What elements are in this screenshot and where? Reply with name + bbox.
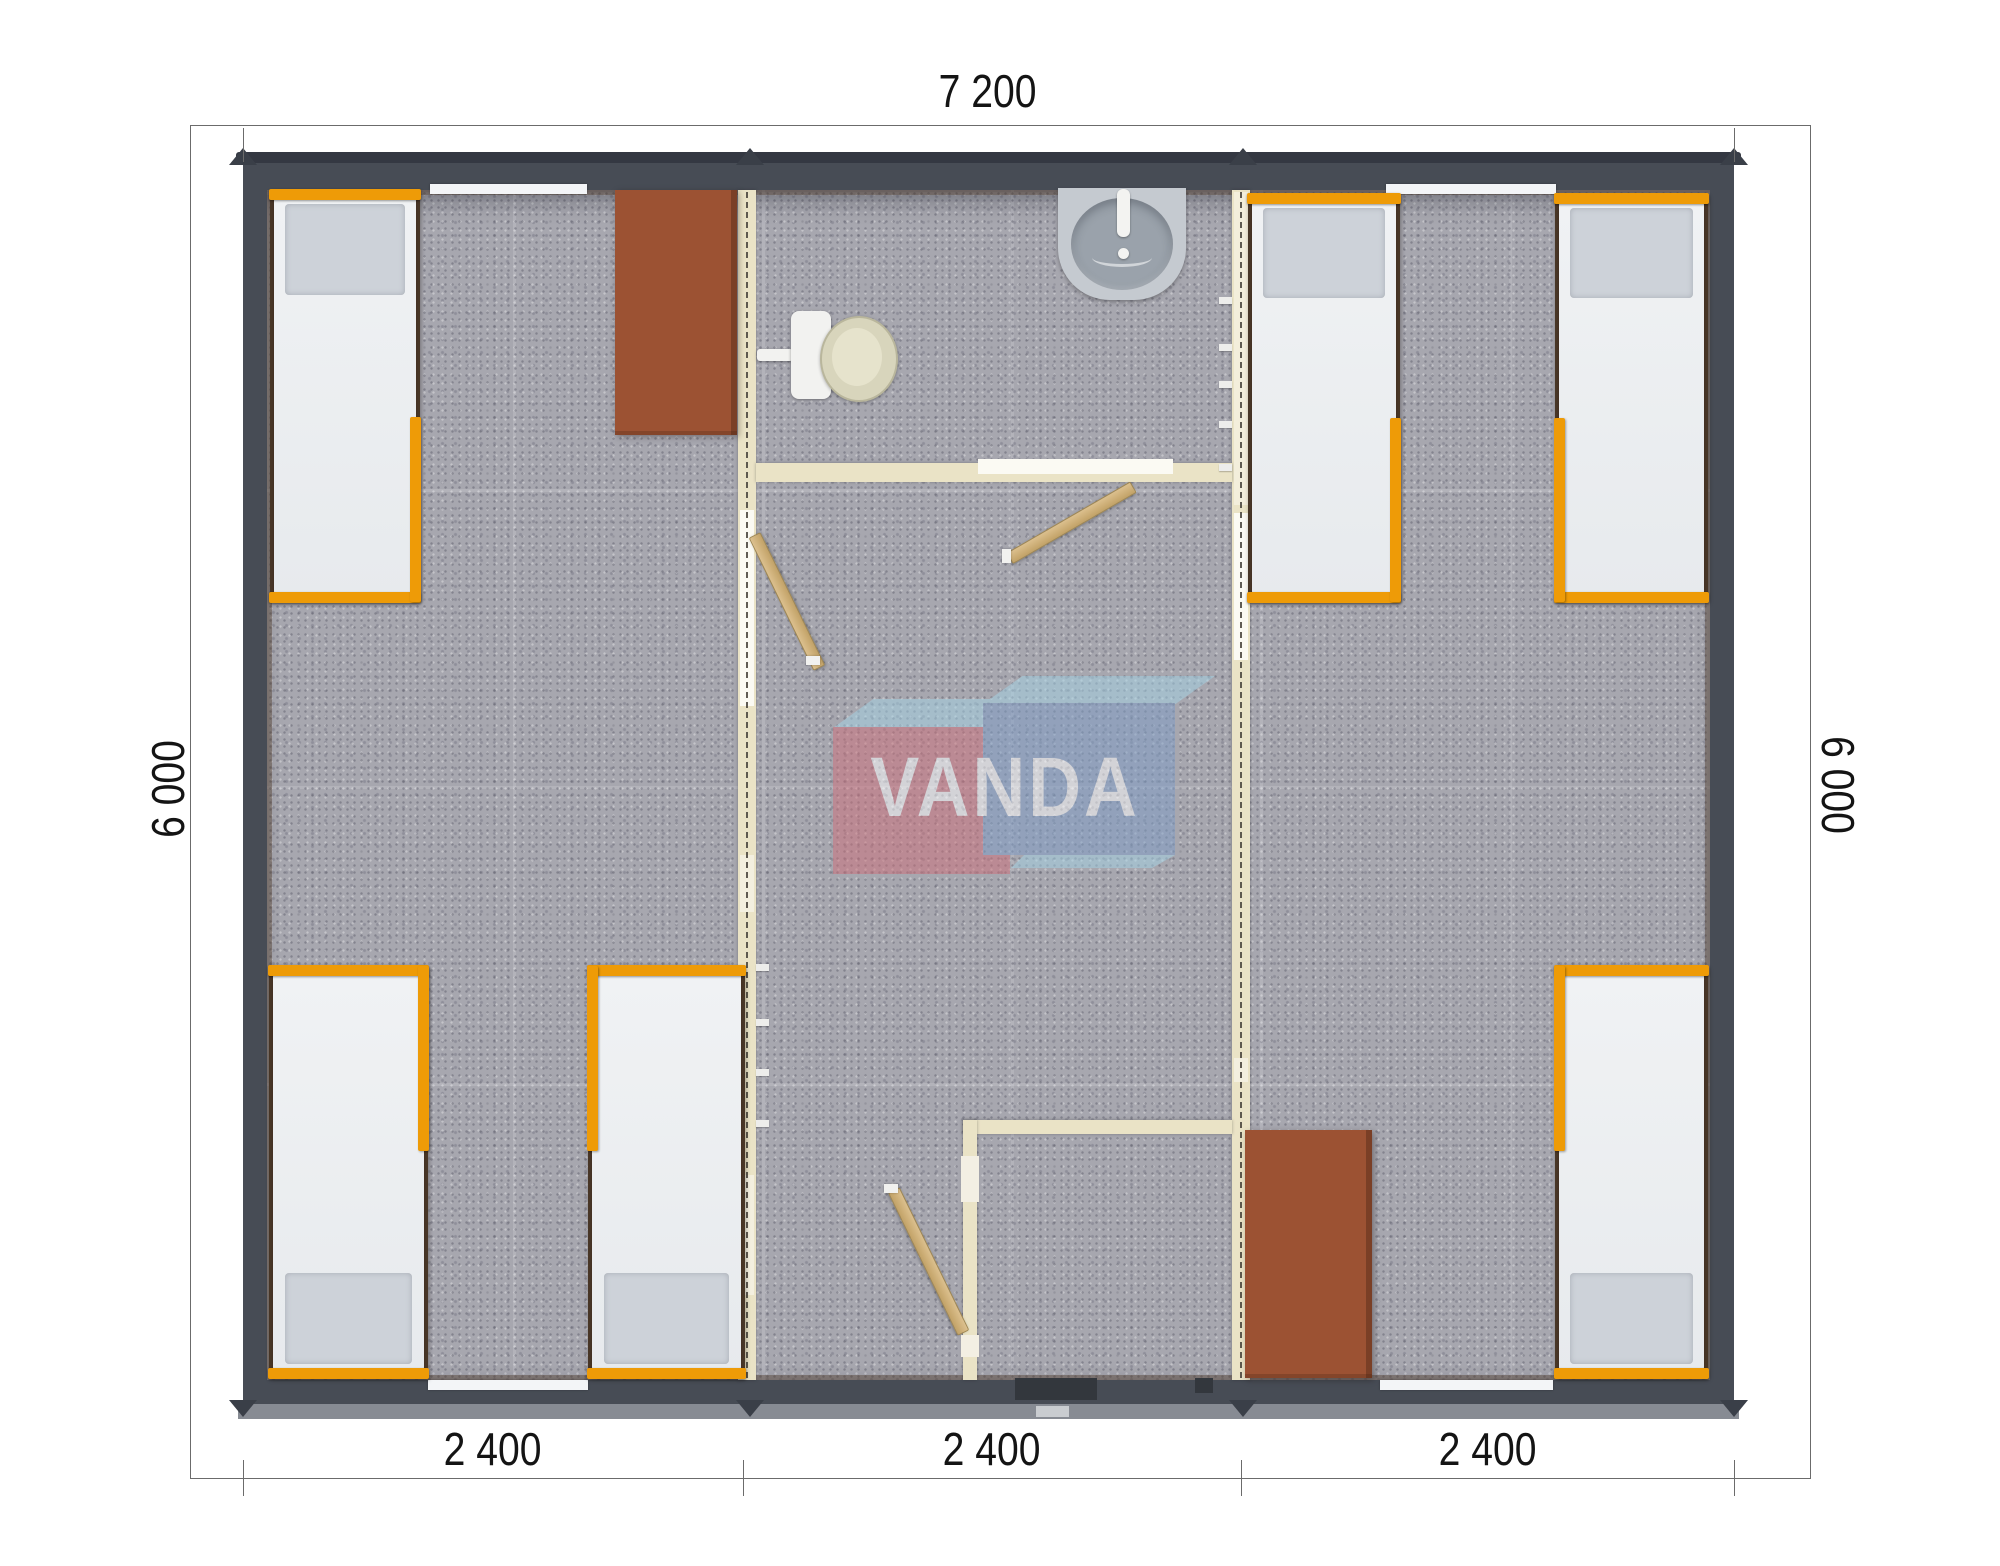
door-jamb [961, 1335, 979, 1357]
door-opening [978, 459, 1173, 474]
floor-plan: VANDA 7 200 6 000 6 000 2 400 2 400 2 40… [0, 0, 2000, 1566]
roof-joint-marker-top [1229, 148, 1257, 165]
toilet-seat [832, 328, 882, 386]
bed-pillow [1263, 208, 1385, 298]
vestibule-wall-top [963, 1120, 1232, 1134]
bed-frame-bar [1554, 592, 1709, 603]
wall-center-dashline [1240, 192, 1242, 1378]
window [430, 184, 587, 194]
entrance-door [1015, 1378, 1097, 1400]
dimension-tick [1734, 1460, 1735, 1496]
wall-hook-icon [1219, 421, 1232, 428]
dimension-line-top [190, 125, 1810, 126]
door-jamb [961, 1156, 979, 1202]
roof-joint-marker-top [736, 148, 764, 165]
bed-frame-bar [269, 592, 421, 603]
entrance-step [1036, 1406, 1069, 1417]
bed-frame-bar [587, 1368, 746, 1379]
bed-pillow [285, 204, 405, 295]
dimension-label-width: 7 200 [898, 64, 1078, 118]
sink-drain-line [1092, 248, 1152, 267]
wall-hook-icon [756, 1120, 769, 1127]
bed-side-rail [1390, 418, 1401, 602]
desk-table [1245, 1130, 1372, 1378]
door-edge-cap [1002, 549, 1011, 563]
dimension-label-module-1: 2 400 [403, 1422, 583, 1476]
bed-pillow [285, 1273, 412, 1364]
bed-frame-bar [268, 1368, 429, 1379]
bed-frame-bar [1554, 1368, 1709, 1379]
toilet-pipe [757, 349, 793, 361]
dimension-label-height-left: 6 000 [141, 704, 195, 874]
door-edge-cap [884, 1184, 898, 1193]
bed [269, 966, 428, 1378]
bed [1555, 966, 1708, 1378]
bed-frame-bar [1554, 193, 1709, 204]
desk-table [615, 190, 737, 435]
bed [270, 190, 420, 602]
bed-side-rail [587, 966, 598, 1151]
dimension-tick [243, 1460, 244, 1496]
door-leaf [1006, 481, 1136, 564]
wall-hook-icon [1219, 381, 1232, 388]
extension-line [243, 128, 244, 162]
dimension-label-height-right: 6 000 [1811, 700, 1865, 870]
door-leaf [749, 532, 826, 671]
bed-side-rail [1554, 418, 1565, 602]
roof-joint-marker-bottom [229, 1400, 257, 1417]
bed-side-rail [418, 966, 429, 1151]
bed-frame-bar [587, 965, 746, 976]
window [428, 1380, 588, 1390]
bed-frame-bar [1247, 592, 1401, 603]
wall-hook-icon [756, 1019, 769, 1026]
roof-joint-marker-bottom [1720, 1400, 1748, 1417]
door-leaf [888, 1187, 969, 1336]
bed [1555, 194, 1708, 602]
dimension-line-bottom [190, 1478, 1810, 1479]
extension-line [1734, 128, 1735, 162]
sink-faucet [1117, 189, 1130, 237]
wall-hook-icon [756, 1069, 769, 1076]
dimension-tick [743, 1460, 744, 1496]
window [1380, 1380, 1553, 1390]
wall-hook-icon [756, 964, 769, 971]
bed [1248, 194, 1400, 602]
dimension-tick [1241, 1460, 1242, 1496]
bed-pillow [1570, 1273, 1692, 1364]
plan-items-layer [0, 0, 2000, 1566]
bed-side-rail [410, 417, 421, 602]
bed-pillow [604, 1273, 730, 1364]
roof-joint-marker-bottom [736, 1400, 764, 1417]
entrance-vent [1195, 1378, 1213, 1393]
bed-frame-bar [1247, 193, 1401, 204]
window [1386, 184, 1556, 194]
dimension-label-module-2: 2 400 [902, 1422, 1082, 1476]
bed [588, 966, 745, 1378]
wall-hook-icon [1219, 464, 1232, 471]
bed-frame-bar [269, 189, 421, 200]
door-edge-cap [806, 656, 820, 665]
bed-frame-bar [268, 965, 429, 976]
dimension-label-module-3: 2 400 [1398, 1422, 1578, 1476]
bed-pillow [1570, 208, 1692, 298]
roof-joint-marker-bottom [1229, 1400, 1257, 1417]
wall-hook-icon [1219, 297, 1232, 304]
bed-frame-bar [1554, 965, 1709, 976]
wall-center-dashline [746, 192, 748, 1378]
bed-side-rail [1554, 966, 1565, 1151]
wall-hook-icon [1219, 344, 1232, 351]
